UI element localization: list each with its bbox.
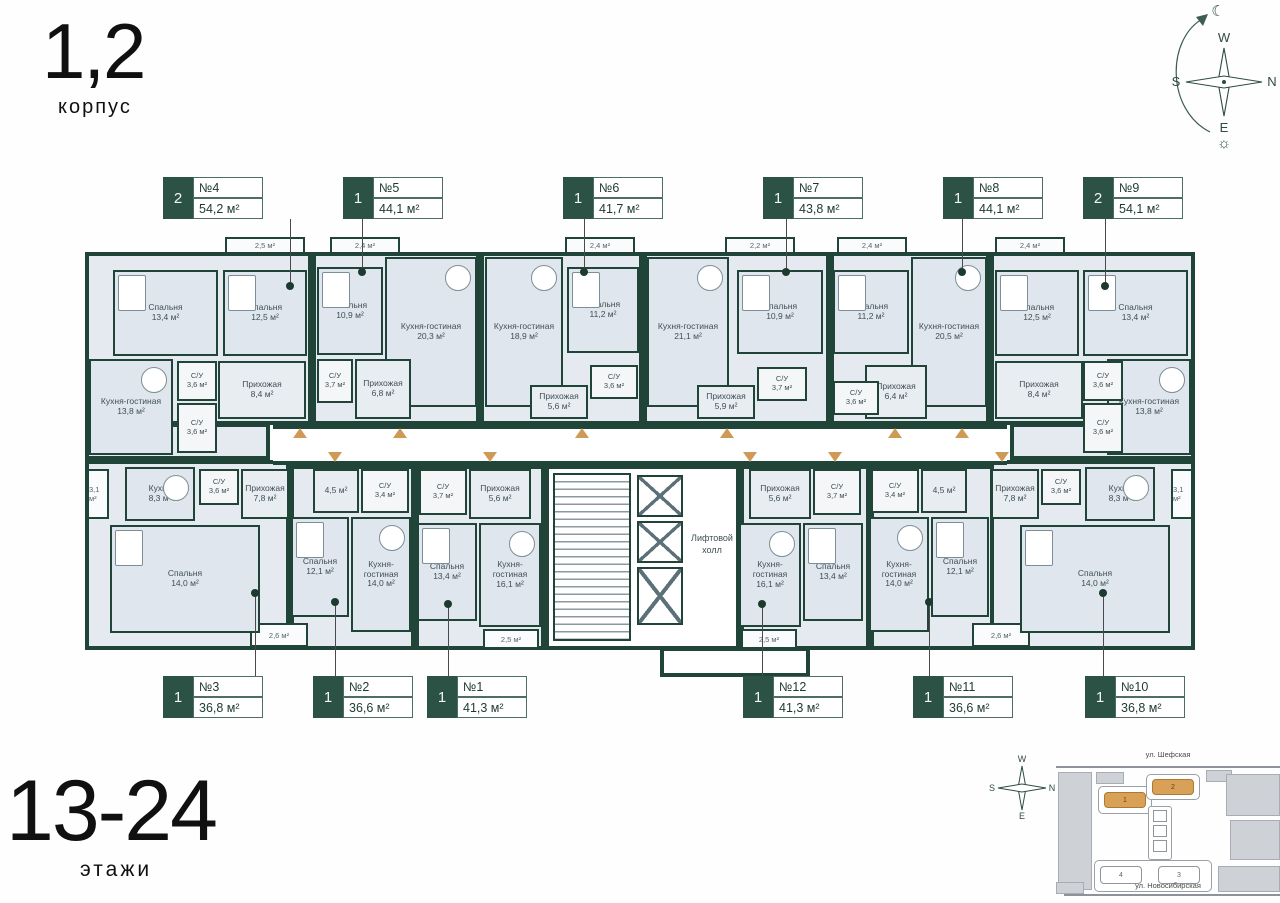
- room-bedroom: Спальня14,0 м²: [110, 525, 260, 633]
- room-kitchen-living: Кухня-гостиная13,8 м²: [89, 359, 173, 455]
- room-kitchen-living: Кухня-гостиная16,1 м²: [739, 523, 801, 627]
- leader-line: [584, 219, 585, 272]
- door-arrow-down: [483, 452, 497, 462]
- room-kitchen-living: Кухня-гостиная16,1 м²: [479, 523, 541, 627]
- door-arrow-down: [828, 452, 842, 462]
- apartment-number: №3: [193, 676, 263, 697]
- door-arrow-down: [743, 452, 757, 462]
- apartment-area: 43,8 м²: [793, 198, 863, 219]
- apartment-12-tag[interactable]: 1№1241,3 м²: [743, 676, 843, 718]
- room-bedroom: Спальня13,4 м²: [803, 523, 863, 621]
- apartment-number: №2: [343, 676, 413, 697]
- room-balcony: 3,1 м²: [1171, 469, 1193, 519]
- room-bathroom: С/У3,6 м²: [199, 469, 239, 505]
- room-count-badge: 1: [1085, 676, 1115, 718]
- room-bathroom: С/У3,6 м²: [177, 361, 217, 401]
- room-hallway: Прихожая5,6 м²: [469, 469, 531, 519]
- room-bedroom: Спальня12,5 м²: [995, 270, 1079, 356]
- compass-n: N: [1049, 783, 1056, 793]
- room-count-badge: 1: [743, 676, 773, 718]
- apartment-area: 41,3 м²: [773, 697, 843, 718]
- leader-dot: [1101, 282, 1109, 290]
- apartment-number: №11: [943, 676, 1013, 697]
- room-count-badge: 2: [1083, 177, 1113, 219]
- room-count-badge: 1: [313, 676, 343, 718]
- door-arrow-up: [955, 428, 969, 438]
- leader-dot: [331, 598, 339, 606]
- door-arrow-up: [393, 428, 407, 438]
- compass-s: S: [1172, 74, 1181, 89]
- moon-icon: ☾: [1211, 3, 1224, 20]
- compass-needle-horizontal: [998, 784, 1046, 792]
- apartment-number: №6: [593, 177, 663, 198]
- leader-dot: [758, 600, 766, 608]
- street-name-bottom: ул. Новосибирская: [1056, 881, 1280, 890]
- apartment-area: 36,6 м²: [343, 697, 413, 718]
- room-bedroom: Спальня12,1 м²: [931, 517, 989, 617]
- map-building-gray: [1226, 774, 1280, 816]
- door-arrow-down: [328, 452, 342, 462]
- room-bathroom: С/У3,7 м²: [419, 469, 467, 515]
- floors-range: 13-24: [6, 762, 216, 861]
- compass-w: W: [1018, 754, 1027, 764]
- compass-s: S: [989, 783, 995, 793]
- map-tower-block: [1153, 840, 1167, 852]
- room-bedroom: Спальня10,9 м²: [737, 270, 823, 354]
- floor-plan: Лифтовой холл Спальня13,4 м² Спальня12,5…: [85, 237, 1195, 667]
- room-hallway: Прихожая5,9 м²: [697, 385, 755, 419]
- door-arrow-up: [888, 428, 902, 438]
- apartment-number: №7: [793, 177, 863, 198]
- room-balcony: 2,5 м²: [225, 237, 305, 254]
- room-bathroom: С/У3,7 м²: [813, 469, 861, 515]
- room-balcony: 2,4 м²: [565, 237, 635, 254]
- apartment-number: №1: [457, 676, 527, 697]
- room-bathroom: С/У3,4 м²: [361, 469, 409, 513]
- room-balcony: 2,5 м²: [483, 629, 539, 649]
- map-building-2[interactable]: 2: [1152, 779, 1194, 795]
- room-bedroom: Спальня14,0 м²: [1020, 525, 1170, 633]
- map-building-gray: [1058, 772, 1092, 890]
- room-bedroom: Спальня12,5 м²: [223, 270, 307, 356]
- room-count-badge: 1: [343, 177, 373, 219]
- compass-e: E: [1019, 811, 1025, 820]
- leader-line: [290, 219, 291, 286]
- leader-dot: [286, 282, 294, 290]
- apartment-area: 54,1 м²: [1113, 198, 1183, 219]
- leader-line: [362, 219, 363, 272]
- room-bedroom: Спальня13,4 м²: [113, 270, 218, 356]
- apartment-9-tag[interactable]: 2№954,1 м²: [1083, 177, 1183, 219]
- compass-e: E: [1220, 120, 1229, 135]
- room-count-badge: 1: [427, 676, 457, 718]
- leader-line: [962, 219, 963, 272]
- leader-dot: [958, 268, 966, 276]
- room-bathroom: С/У3,7 м²: [317, 359, 353, 403]
- apartment-10-tag[interactable]: 1№1036,8 м²: [1085, 676, 1185, 718]
- sun-icon: ☼: [1217, 135, 1231, 150]
- compass-center: [1222, 80, 1226, 84]
- apartment-7-tag[interactable]: 1№743,8 м²: [763, 177, 863, 219]
- room-count-badge: 1: [563, 177, 593, 219]
- door-arrow-up: [293, 428, 307, 438]
- room-hallway: Прихожая5,6 м²: [530, 385, 588, 419]
- room-hallway: Прихожая7,8 м²: [991, 469, 1039, 519]
- elevator-shaft: [637, 521, 683, 563]
- room-hallway: Прихожая8,4 м²: [995, 361, 1083, 419]
- room-bathroom: С/У3,6 м²: [177, 403, 217, 453]
- apartment-number: №4: [193, 177, 263, 198]
- room-count-badge: 1: [163, 676, 193, 718]
- room-bedroom: Спальня11,2 м²: [833, 270, 909, 354]
- arc-arrowhead: [1196, 14, 1208, 26]
- map-building-gray: [1096, 772, 1124, 784]
- room-bedroom: Спальня12,1 м²: [291, 517, 349, 617]
- apartment-number: №12: [773, 676, 843, 697]
- apartment-3-tag[interactable]: 1№336,8 м²: [163, 676, 263, 718]
- apartment-area: 36,6 м²: [943, 697, 1013, 718]
- apartment-11-tag[interactable]: 1№1136,6 м²: [913, 676, 1013, 718]
- room-balcony: 2,4 м²: [995, 237, 1065, 254]
- apartment-number: №5: [373, 177, 443, 198]
- room-kitchen-living: Кухня-гостиная14,0 м²: [351, 517, 411, 632]
- leader-line: [762, 606, 763, 676]
- room-count-badge: 1: [913, 676, 943, 718]
- leader-dot: [251, 589, 259, 597]
- compass-w: W: [1218, 30, 1231, 45]
- room-hallway: 4,5 м²: [313, 469, 359, 513]
- map-tower-block: [1153, 810, 1167, 822]
- elevator-hall-label: Лифтовой холл: [683, 533, 741, 556]
- mini-compass-rose: W S N E: [986, 750, 1058, 820]
- leader-line: [448, 606, 449, 676]
- leader-dot: [444, 600, 452, 608]
- leader-dot: [580, 268, 588, 276]
- leader-line: [786, 219, 787, 272]
- door-arrow-up: [720, 428, 734, 438]
- apartment-1-tag[interactable]: 1№141,3 м²: [427, 676, 527, 718]
- apartment-area: 54,2 м²: [193, 198, 263, 219]
- apartment-area: 36,8 м²: [193, 697, 263, 718]
- apartment-4-tag[interactable]: 2№454,2 м²: [163, 177, 263, 219]
- leader-line: [929, 604, 930, 676]
- room-balcony: 2,4 м²: [330, 237, 400, 254]
- room-bathroom: С/У3,4 м²: [871, 469, 919, 513]
- building-numbers: 1,2: [42, 6, 144, 97]
- room-bathroom: С/У3,7 м²: [757, 367, 807, 401]
- room-hallway: Прихожая8,4 м²: [218, 361, 306, 419]
- street-name-top: ул. Шефская: [1056, 750, 1280, 759]
- apartment-area: 44,1 м²: [373, 198, 443, 219]
- room-count-badge: 1: [763, 177, 793, 219]
- floorplan-page: 1,2 корпус 13-24 этажи ☾ W S N E ☼: [0, 0, 1280, 903]
- apartment-number: №10: [1115, 676, 1185, 697]
- floors-label: этажи: [80, 858, 152, 882]
- leader-dot: [1099, 589, 1107, 597]
- door-arrow-up: [575, 428, 589, 438]
- elevator-shaft: [637, 567, 683, 625]
- apartment-area: 36,8 м²: [1115, 697, 1185, 718]
- road-line: [1056, 766, 1280, 768]
- room-bedroom: Спальня13,4 м²: [1083, 270, 1188, 356]
- room-bathroom: С/У3,6 м²: [1083, 403, 1123, 453]
- road-line: [1064, 894, 1280, 896]
- room-hallway: Прихожая6,8 м²: [355, 359, 411, 419]
- apartment-area: 44,1 м²: [973, 198, 1043, 219]
- leader-dot: [358, 268, 366, 276]
- room-balcony: 3,1 м²: [87, 469, 109, 519]
- room-bathroom: С/У3,6 м²: [1041, 469, 1081, 505]
- apartment-number: №9: [1113, 177, 1183, 198]
- leader-line: [335, 604, 336, 676]
- room-kitchen: Кухня8,3 м²: [1085, 467, 1155, 521]
- apartment-area: 41,7 м²: [593, 198, 663, 219]
- room-bathroom: С/У3,6 м²: [833, 381, 879, 415]
- room-balcony: 2,2 м²: [725, 237, 795, 254]
- door-arrow-down: [995, 452, 1009, 462]
- leader-line: [255, 595, 256, 676]
- elevator-shaft: [637, 475, 683, 517]
- compass-rose: ☾ W S N E ☼: [1150, 0, 1280, 150]
- room-bathroom: С/У3,6 м²: [1083, 361, 1123, 401]
- room-hallway: 4,5 м²: [921, 469, 967, 513]
- room-kitchen-living: Кухня-гостиная14,0 м²: [869, 517, 929, 632]
- room-bathroom: С/У3,6 м²: [590, 365, 638, 399]
- room-bedroom: Спальня11,2 м²: [567, 267, 639, 353]
- room-kitchen: Кухня8,3 м²: [125, 467, 195, 521]
- site-map: ул. Шефская 1 2 4 3 ул. Новосибирская: [1056, 748, 1280, 903]
- leader-dot: [925, 598, 933, 606]
- map-tower-block: [1153, 825, 1167, 837]
- sun-path-arc: [1176, 18, 1210, 132]
- room-count-badge: 2: [163, 177, 193, 219]
- apartment-number: №8: [973, 177, 1043, 198]
- entrance-vestibule: [660, 647, 810, 677]
- room-hallway: Прихожая5,6 м²: [749, 469, 811, 519]
- room-balcony: 2,4 м²: [837, 237, 907, 254]
- apartment-8-tag[interactable]: 1№844,1 м²: [943, 177, 1043, 219]
- apartment-6-tag[interactable]: 1№641,7 м²: [563, 177, 663, 219]
- apartment-5-tag[interactable]: 1№544,1 м²: [343, 177, 443, 219]
- building-label: корпус: [58, 96, 132, 119]
- staircase: [553, 473, 631, 641]
- map-building-gray: [1230, 820, 1280, 860]
- map-building-1[interactable]: 1: [1104, 792, 1146, 808]
- room-count-badge: 1: [943, 177, 973, 219]
- compass-n: N: [1267, 74, 1276, 89]
- apartment-2-tag[interactable]: 1№236,6 м²: [313, 676, 413, 718]
- room-balcony: 2,5 м²: [741, 629, 797, 649]
- room-bedroom: Спальня10,9 м²: [317, 267, 383, 355]
- leader-line: [1105, 219, 1106, 286]
- room-hallway: Прихожая7,8 м²: [241, 469, 289, 519]
- leader-line: [1103, 595, 1104, 676]
- leader-dot: [782, 268, 790, 276]
- apartment-area: 41,3 м²: [457, 697, 527, 718]
